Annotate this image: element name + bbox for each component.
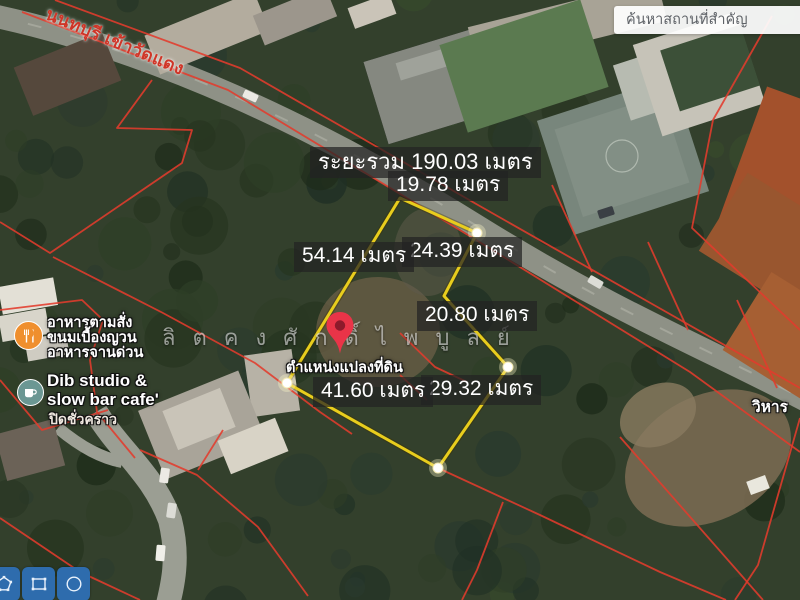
draw-polygon-tool-button[interactable] [0, 567, 20, 600]
pin-label: ตำแหน่งแปลงที่ดิน [286, 356, 403, 379]
draw-rectangle-tool-button[interactable] [22, 567, 55, 600]
rectangle-draw-icon [29, 574, 49, 594]
poi-cafe-name1: Dib studio & [47, 371, 159, 390]
draw-circle-tool-button[interactable] [57, 567, 90, 600]
segment-length-label-1: 19.78 เมตร [388, 171, 508, 201]
watermark-letter: ต [192, 320, 206, 355]
poi-restaurant-line1: อาหารตามสั่ง [47, 316, 143, 331]
map-canvas[interactable]: นนทบุรี เข้าวัดแดง ลิตคงศักดิ์ไพบูลย์ ระ… [0, 0, 800, 600]
watermark-letter: ไ [376, 320, 387, 355]
satellite-map [0, 0, 800, 600]
poi-cafe-status: ปิดชั่วคราว [49, 409, 117, 431]
poi-cafe-label[interactable]: Dib studio & slow bar cafe' [47, 371, 159, 409]
watermark-letter: ศั [283, 320, 297, 355]
poi-cafe-name2: slow bar cafe' [47, 390, 159, 409]
segment-length-label-2: 24.39 เมตร [402, 237, 522, 267]
cafe-icon[interactable] [17, 379, 44, 406]
watermark-letter: ง [256, 320, 267, 355]
polygon-draw-icon [0, 574, 14, 594]
search-input[interactable] [614, 6, 800, 34]
location-pin-icon[interactable] [325, 311, 355, 355]
segment-length-label-3: 20.80 เมตร [417, 301, 537, 331]
right-edge-place-label: วิหาร [752, 394, 788, 419]
poi-restaurant-line3: อาหารจานด่วน [47, 346, 143, 361]
poi-restaurant-label[interactable]: อาหารตามสั่ง ขนมเบื้องญวน อาหารจานด่วน [47, 316, 143, 361]
watermark-letter: ค [224, 320, 239, 355]
segment-length-label-6: 54.14 เมตร [294, 242, 414, 272]
watermark-letter: ลิ [162, 320, 175, 355]
poi-restaurant-line2: ขนมเบื้องญวน [47, 331, 143, 346]
restaurant-icon[interactable] [14, 321, 43, 350]
circle-draw-icon [64, 574, 84, 594]
segment-length-label-4: 29.32 เมตร [421, 375, 541, 405]
segment-length-label-5: 41.60 เมตร [313, 377, 433, 407]
